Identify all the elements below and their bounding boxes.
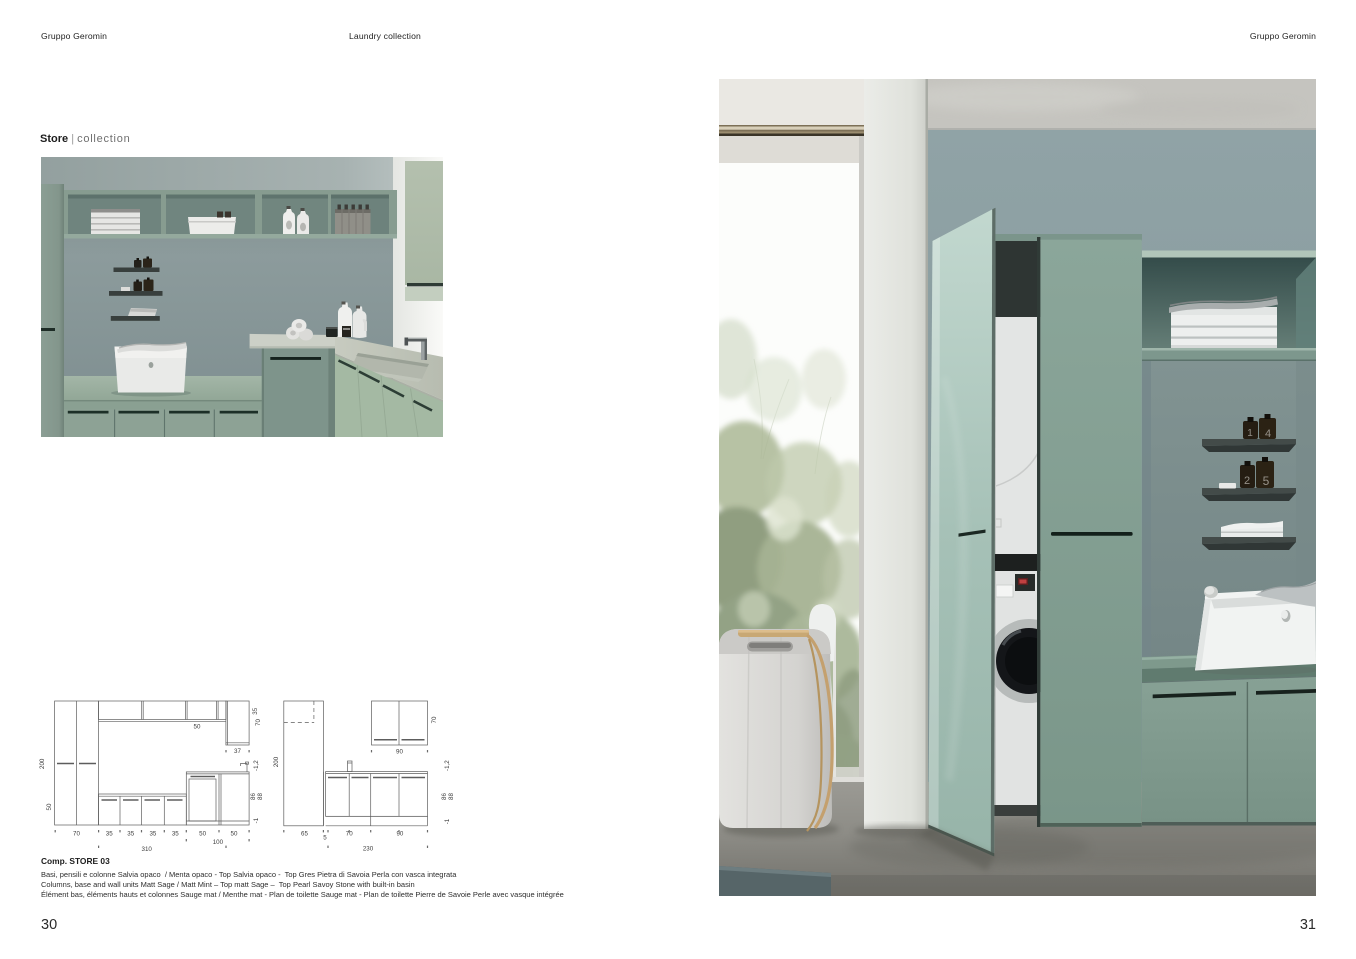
svg-text:35: 35: [172, 830, 179, 837]
svg-text:50: 50: [194, 724, 201, 731]
svg-text:70: 70: [255, 719, 262, 726]
svg-text:88: 88: [448, 793, 455, 800]
svg-text:35: 35: [252, 707, 259, 714]
svg-text:88: 88: [257, 793, 264, 800]
svg-text:86: 86: [441, 793, 448, 800]
svg-text:-1: -1: [253, 817, 260, 823]
svg-text:86: 86: [250, 793, 257, 800]
svg-text:2: 2: [1244, 475, 1250, 487]
svg-text:310: 310: [142, 846, 153, 853]
svg-text:35: 35: [106, 830, 113, 837]
svg-text:50: 50: [199, 830, 206, 837]
svg-text:200: 200: [273, 756, 280, 767]
svg-text:4: 4: [1265, 428, 1271, 440]
svg-text:90: 90: [396, 749, 403, 756]
svg-text:100: 100: [213, 839, 224, 846]
svg-text:35: 35: [127, 830, 134, 837]
svg-text:37: 37: [234, 748, 241, 755]
svg-text:-1: -1: [444, 818, 451, 824]
svg-text:5: 5: [1263, 474, 1270, 488]
svg-text:230: 230: [363, 845, 374, 852]
svg-text:70: 70: [73, 830, 80, 837]
svg-text:50: 50: [231, 830, 238, 837]
svg-text:-1,2: -1,2: [253, 760, 260, 771]
svg-text:65: 65: [301, 830, 308, 837]
svg-text:1: 1: [1247, 428, 1253, 439]
svg-text:200: 200: [39, 758, 46, 769]
svg-text:70: 70: [431, 716, 438, 723]
svg-text:35: 35: [149, 830, 156, 837]
svg-text:-1,2: -1,2: [444, 760, 451, 771]
svg-text:50: 50: [46, 803, 53, 810]
svg-text:5: 5: [323, 835, 327, 842]
svg-text:90: 90: [396, 830, 403, 837]
